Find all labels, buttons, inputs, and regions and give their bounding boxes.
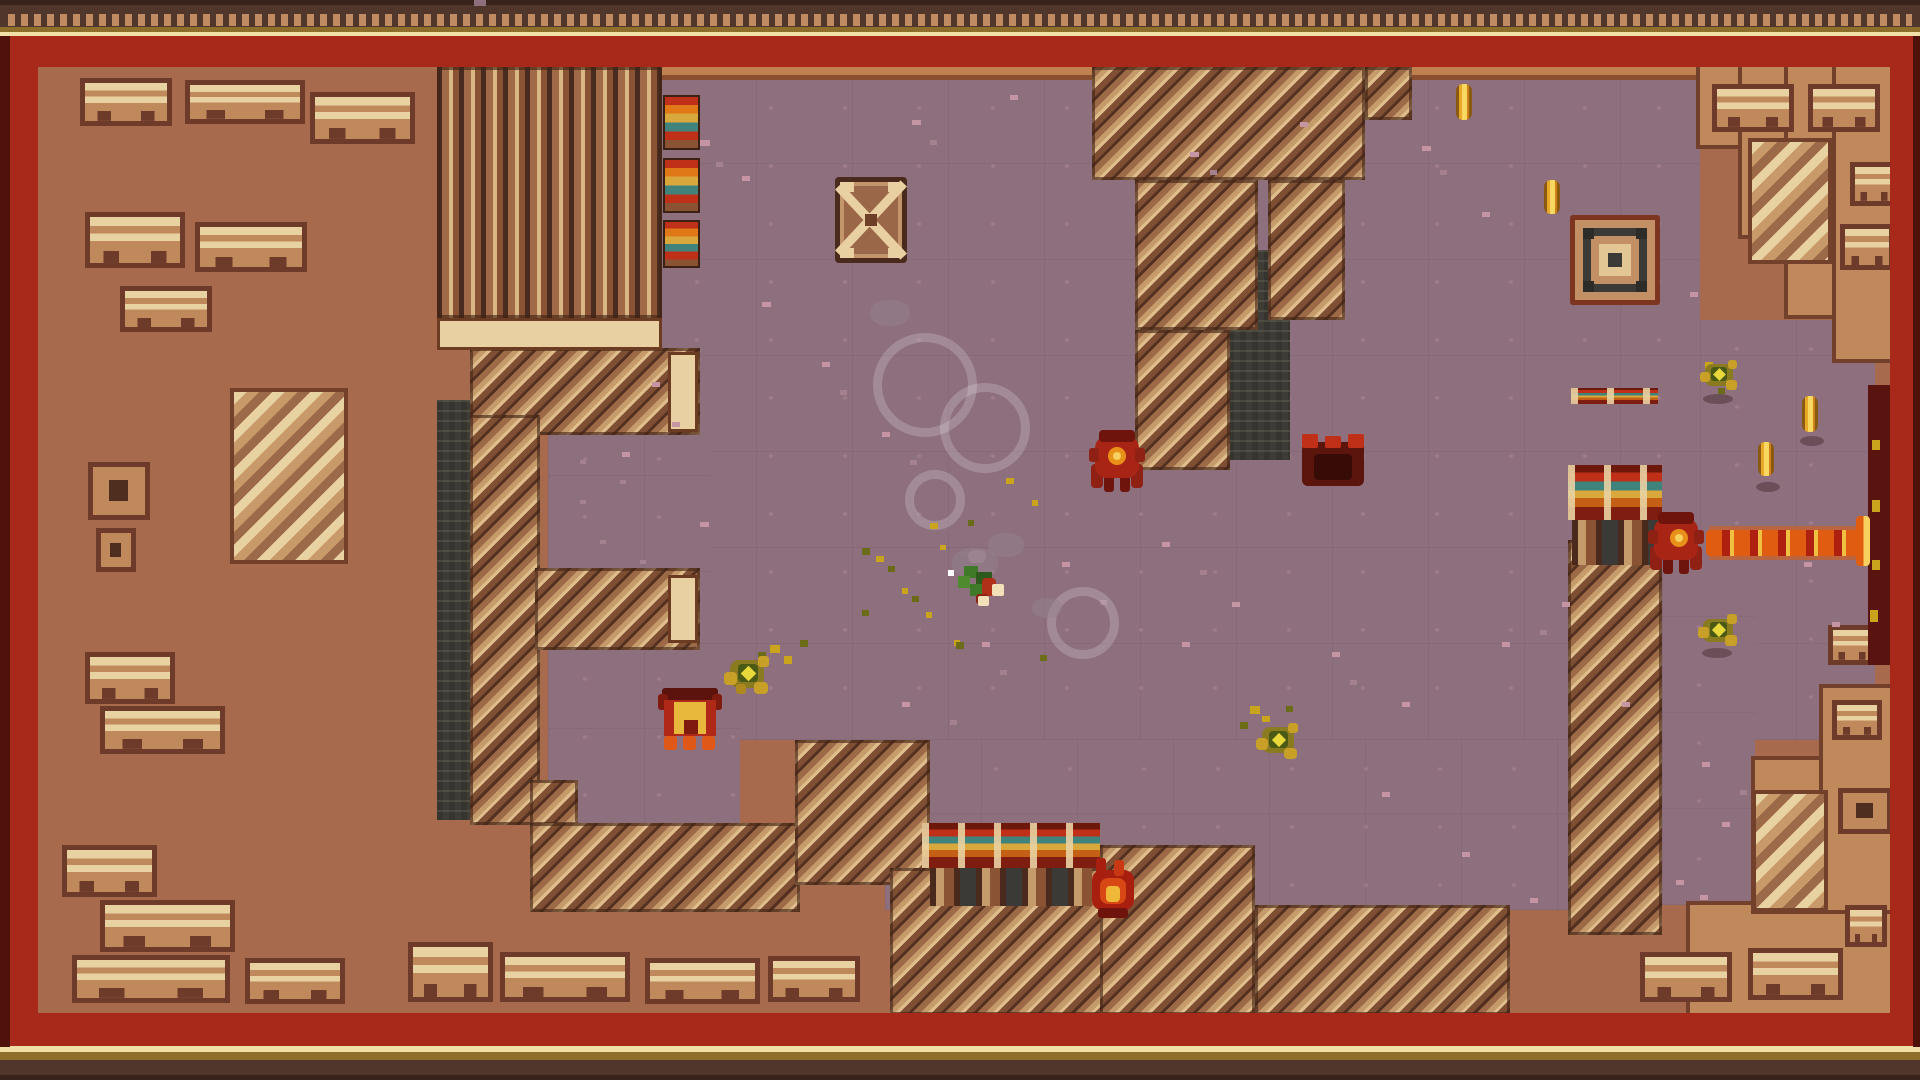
floor-speckle bbox=[1676, 880, 1684, 885]
floor-speckle bbox=[882, 432, 890, 437]
fire-spider-enemy-shooting-part bbox=[1694, 530, 1704, 544]
floor-region bbox=[1662, 540, 1755, 905]
particle-olive bbox=[956, 642, 964, 649]
particle-olive bbox=[1286, 706, 1293, 712]
ornament-doodad bbox=[185, 80, 305, 124]
floor-speckle-dim bbox=[716, 162, 723, 167]
wall-totem bbox=[663, 158, 700, 213]
beetle-enemy[interactable] bbox=[1256, 718, 1302, 760]
ornament-doodad bbox=[408, 942, 493, 1002]
smoke-ring bbox=[905, 470, 965, 530]
smoke-ring bbox=[940, 383, 1030, 473]
beetle-enemy-part bbox=[1284, 748, 1297, 759]
floor-speckle bbox=[982, 642, 990, 647]
flame-imp-enemy-part bbox=[1098, 908, 1128, 918]
beetle-enemy-part bbox=[1256, 738, 1268, 750]
ornament-doodad bbox=[120, 286, 212, 332]
beetle-enemy-part bbox=[724, 672, 737, 685]
ornament-doodad bbox=[85, 212, 185, 268]
ornament-doodad bbox=[62, 845, 157, 897]
ornament-doodad bbox=[80, 78, 172, 126]
floor-speckle bbox=[652, 382, 660, 387]
floor-speckle bbox=[1622, 702, 1630, 707]
beetle-enemy-part bbox=[754, 682, 768, 694]
floor-speckle-dim bbox=[930, 140, 937, 145]
crate-x-part bbox=[888, 182, 902, 192]
fire-spider-enemy-shooting[interactable] bbox=[1648, 512, 1704, 574]
floor-speckle-dim bbox=[1440, 170, 1447, 175]
wall-totem bbox=[663, 95, 700, 150]
fire-spider-enemy-shooting-part bbox=[1675, 534, 1683, 542]
floor-speckle-dim bbox=[950, 720, 957, 725]
crate-x-part bbox=[840, 248, 854, 258]
ornament-doodad bbox=[645, 958, 760, 1004]
floor-speckle bbox=[1690, 292, 1698, 297]
floor-speckle bbox=[1482, 212, 1490, 217]
weapon-chest-part bbox=[1302, 434, 1318, 448]
wall-segment bbox=[1365, 67, 1412, 120]
ornament-doodad bbox=[1840, 224, 1894, 270]
border-red-frame bbox=[0, 36, 1920, 67]
beetle-enemy-part bbox=[1698, 627, 1709, 638]
beetle-enemy-part bbox=[758, 656, 769, 667]
particle-olive bbox=[862, 548, 870, 555]
particle-gold bbox=[876, 556, 884, 562]
floor-speckle bbox=[1462, 852, 1470, 857]
particle-olive bbox=[968, 520, 974, 526]
beetle-enemy[interactable] bbox=[1698, 610, 1740, 648]
weapon-chest-part bbox=[1325, 436, 1341, 448]
floor-speckle bbox=[1402, 702, 1410, 707]
wall-stripe-cap bbox=[922, 823, 1100, 868]
beetle-enemy[interactable] bbox=[1700, 356, 1740, 392]
ammo-pickup[interactable] bbox=[1544, 180, 1560, 214]
smoke-puff bbox=[1032, 598, 1062, 618]
border-gold-line bbox=[0, 1052, 1920, 1060]
ornament-doodad bbox=[195, 222, 307, 272]
rug-tile-part bbox=[1583, 228, 1594, 239]
floor-speckle-dim bbox=[1210, 170, 1217, 175]
beetle-enemy-part bbox=[1727, 614, 1737, 624]
floor-speckle-dim bbox=[1350, 680, 1357, 685]
particle-gold bbox=[926, 612, 932, 618]
fire-spider-enemy[interactable] bbox=[1089, 430, 1145, 492]
wall-segment bbox=[1268, 180, 1345, 320]
ornament-window bbox=[88, 462, 150, 520]
player-plant-character-part bbox=[958, 576, 970, 588]
border-maroon-edge bbox=[0, 36, 10, 1047]
floor-speckle bbox=[1062, 562, 1070, 567]
floor-speckle-dim bbox=[580, 500, 586, 504]
ornament-doodad bbox=[245, 958, 345, 1004]
ornament-staircase bbox=[230, 388, 348, 564]
ornament-doodad bbox=[1748, 948, 1843, 1000]
floor-speckle bbox=[742, 176, 750, 181]
wall-shadow bbox=[437, 400, 470, 820]
ornament-doodad bbox=[100, 900, 235, 952]
fire-spider-enemy-part bbox=[1113, 452, 1121, 460]
shield-turret-enemy[interactable] bbox=[658, 688, 722, 750]
ornament-staircase bbox=[1748, 138, 1832, 264]
floor-speckle bbox=[700, 140, 710, 146]
fire-spider-enemy-part bbox=[1099, 430, 1135, 442]
particle-gold bbox=[1872, 560, 1880, 570]
particle-gold bbox=[902, 588, 908, 594]
fire-spider-enemy-part bbox=[1135, 448, 1145, 462]
ornament-doodad bbox=[1832, 700, 1882, 740]
flame-imp-enemy[interactable] bbox=[1086, 858, 1140, 918]
particle-gold bbox=[1006, 478, 1014, 484]
smoke-ring bbox=[1047, 587, 1119, 659]
weapon-chest-part bbox=[1314, 454, 1352, 480]
wall-segment bbox=[1255, 905, 1510, 1015]
wall-segment bbox=[795, 740, 930, 885]
rug-tile-part bbox=[1583, 281, 1594, 292]
top-bar-purple-notch bbox=[474, 0, 486, 6]
border-maroon-edge bbox=[1913, 36, 1920, 1047]
ornament-doodad bbox=[85, 652, 175, 704]
floor-speckle-dim bbox=[580, 460, 586, 464]
ornament-doodad bbox=[72, 955, 230, 1003]
fire-spider-enemy-shooting-part bbox=[1658, 512, 1694, 524]
floor-speckle bbox=[622, 452, 630, 457]
entity-shadow bbox=[1702, 648, 1732, 658]
fire-impact bbox=[1856, 516, 1870, 566]
particle-gold bbox=[784, 656, 792, 664]
flame-imp-enemy-part bbox=[1114, 860, 1124, 876]
floor-speckle bbox=[1162, 542, 1170, 547]
flame-imp-enemy-part bbox=[1106, 886, 1120, 902]
floor-speckle-dim bbox=[910, 460, 917, 465]
ammo-pickup[interactable] bbox=[1758, 442, 1774, 476]
floor-speckle bbox=[672, 422, 680, 427]
floor-speckle bbox=[1700, 895, 1708, 900]
wall-segment bbox=[1135, 330, 1230, 470]
particle-olive bbox=[912, 596, 919, 602]
border-cream-line bbox=[0, 1046, 1920, 1052]
floor-speckle bbox=[1422, 146, 1431, 151]
floor-speckle-dim bbox=[1740, 790, 1747, 795]
wall-post-base bbox=[1572, 520, 1658, 565]
particle-olive bbox=[1040, 655, 1047, 661]
wall-segment bbox=[1568, 540, 1662, 935]
wall-pipes-vertical bbox=[437, 67, 662, 318]
beetle-enemy-part bbox=[1726, 380, 1737, 390]
floor-speckle-dim bbox=[1000, 670, 1007, 675]
crate-x-part bbox=[865, 214, 877, 226]
floor-speckle bbox=[1190, 152, 1199, 157]
floor-speckle bbox=[1502, 642, 1510, 647]
particle-gold bbox=[1872, 440, 1880, 450]
floor-speckle bbox=[762, 302, 771, 307]
player-plant-character-part bbox=[978, 596, 989, 606]
fire-spider-enemy-shooting-part bbox=[1648, 530, 1658, 544]
beetle-enemy-part bbox=[1725, 635, 1737, 646]
floor-speckle bbox=[1010, 95, 1018, 100]
floor-speckle bbox=[1722, 822, 1730, 827]
floor-speckle bbox=[700, 522, 709, 527]
rug-tile bbox=[1570, 215, 1660, 305]
floor-speckle bbox=[1804, 562, 1812, 567]
weapon-chest-part bbox=[1348, 434, 1364, 448]
burning-wall-strip bbox=[1868, 385, 1890, 665]
ammo-pickup[interactable] bbox=[1456, 84, 1472, 120]
fire-spider-enemy-part bbox=[1089, 448, 1099, 462]
ornament-doodad bbox=[310, 92, 415, 144]
wall-segment bbox=[1135, 180, 1258, 330]
floor-speckle bbox=[912, 120, 921, 125]
beetle-enemy-part bbox=[1288, 723, 1298, 733]
wall-cap bbox=[668, 575, 698, 643]
wall-segment bbox=[530, 823, 800, 912]
beetle-enemy-part bbox=[736, 684, 746, 694]
particle-olive bbox=[1240, 722, 1248, 729]
particle-gold bbox=[930, 523, 938, 529]
wall-stripe-cap bbox=[1571, 388, 1658, 404]
floor-speckle-dim bbox=[840, 390, 847, 395]
flame-imp-enemy-part bbox=[1096, 858, 1106, 876]
border-red-frame bbox=[10, 36, 38, 1046]
entity-shadow bbox=[1703, 394, 1733, 404]
wall-totem bbox=[663, 220, 700, 268]
border-red-frame bbox=[1890, 36, 1913, 1046]
player-plant-character-part bbox=[948, 570, 954, 576]
shield-turret-enemy-part bbox=[664, 736, 677, 750]
wall-cap bbox=[668, 352, 698, 432]
rug-tile-part bbox=[1608, 253, 1622, 267]
ornament-doodad bbox=[1640, 952, 1732, 1002]
ornament-doodad bbox=[1845, 905, 1887, 947]
beetle-enemy-part bbox=[1728, 360, 1737, 369]
ornament-doodad bbox=[100, 706, 225, 754]
rug-tile-part bbox=[1636, 228, 1647, 239]
bottom-border-dark-line bbox=[0, 1075, 1920, 1080]
player-plant-character-part bbox=[968, 550, 986, 563]
floor-speckle bbox=[822, 362, 830, 367]
floor-speckle-dim bbox=[620, 480, 626, 484]
wall-post-base bbox=[930, 868, 1092, 906]
shield-turret-enemy-part bbox=[683, 736, 696, 750]
border-dot-strip bbox=[8, 14, 1912, 26]
border-red-frame bbox=[0, 1013, 1920, 1046]
floor-speckle bbox=[1382, 792, 1390, 797]
entity-shadow bbox=[1756, 482, 1780, 492]
crate-x-part bbox=[888, 248, 902, 258]
crate-x[interactable] bbox=[835, 177, 907, 263]
floor-speckle bbox=[1530, 898, 1538, 903]
floor-speckle-dim bbox=[640, 560, 646, 564]
particle-olive bbox=[862, 610, 869, 616]
particle-gold bbox=[1250, 706, 1260, 714]
floor-speckle-dim bbox=[600, 540, 606, 544]
floor-speckle bbox=[1562, 602, 1570, 607]
weapon-chest[interactable] bbox=[1302, 434, 1364, 486]
floor-speckle bbox=[1332, 652, 1340, 657]
particle-gold bbox=[1872, 500, 1880, 512]
beetle-enemy[interactable] bbox=[724, 650, 772, 696]
floor-speckle bbox=[1832, 622, 1840, 627]
shield-turret-enemy-part bbox=[702, 736, 715, 750]
wall-segment bbox=[470, 415, 540, 825]
entity-shadow bbox=[1800, 436, 1824, 446]
game-viewport[interactable] bbox=[0, 0, 1920, 1080]
crate-x-part bbox=[840, 182, 854, 192]
fire-stream bbox=[1706, 530, 1868, 556]
floor-speckle bbox=[1702, 762, 1710, 767]
particle-olive bbox=[888, 566, 895, 572]
beetle-enemy-part bbox=[1700, 372, 1710, 382]
particle-gold bbox=[1032, 500, 1038, 506]
ammo-pickup[interactable] bbox=[1802, 396, 1818, 432]
floor-speckle bbox=[902, 702, 910, 707]
floor-speckle bbox=[1182, 642, 1190, 647]
shield-turret-enemy-part bbox=[684, 720, 698, 734]
ornament-window bbox=[1838, 788, 1892, 834]
floor-speckle-dim bbox=[1200, 570, 1207, 575]
rug-tile-part bbox=[1636, 281, 1647, 292]
particle-gold bbox=[1870, 610, 1878, 622]
player-plant-character-part bbox=[992, 584, 1004, 596]
floor-speckle bbox=[1232, 602, 1240, 607]
smoke-puff bbox=[870, 300, 910, 326]
particle-olive bbox=[800, 640, 808, 647]
ornament-doodad bbox=[1712, 84, 1794, 132]
floor-speckle-dim bbox=[1540, 630, 1547, 635]
ornament-window bbox=[96, 528, 136, 572]
wall-cap bbox=[437, 318, 662, 350]
ornament-doodad bbox=[500, 952, 630, 1002]
wall-segment bbox=[530, 780, 578, 825]
ornament-doodad bbox=[1808, 84, 1880, 132]
ornament-doodad bbox=[768, 956, 860, 1002]
ornament-staircase bbox=[1752, 790, 1828, 912]
top-border-dark-line bbox=[0, 0, 1920, 5]
player-plant-character[interactable] bbox=[946, 550, 1006, 606]
wall-segment bbox=[1092, 67, 1365, 180]
floor-speckle bbox=[1300, 122, 1308, 127]
